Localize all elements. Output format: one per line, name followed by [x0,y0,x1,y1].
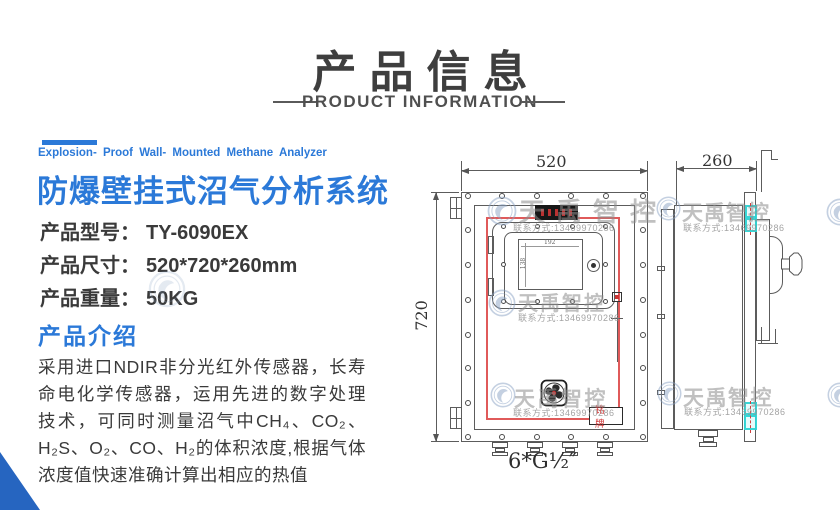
watermark-contact: 联系方式:13469970286 [683,221,785,234]
spec-value-model: TY-6090EX [146,222,248,244]
dim-label-width: 520 [536,152,567,171]
bolt [501,262,506,267]
mount-hole [657,266,665,271]
mount-hook [761,150,762,192]
intro-heading: 产品介绍 [38,317,138,351]
bolt [640,297,646,303]
gland-thread-spec: 6*G½″ [508,449,577,473]
cable-gland [492,452,508,456]
cable-gland [597,452,613,456]
header-line-right [521,101,565,103]
bolt [465,297,471,303]
watermark-logo-icon [656,196,681,221]
product-title: 防爆壁挂式沼气分析系统 [37,166,389,211]
screen-dim-line [521,246,579,247]
bolt [465,365,471,371]
arrow-icon [749,166,757,172]
sensor-dot [615,295,619,299]
bolt [568,434,574,440]
dim-line-720 [436,192,437,442]
bolt [640,365,646,371]
arrow-icon [433,434,439,442]
bolt [465,262,471,268]
bolt [465,400,471,406]
door-face [756,219,770,341]
bolt [640,332,646,338]
spec-label-weight: 产品重量： [40,288,140,310]
page-title: 产品信息 [0,36,840,100]
arrow-icon [676,166,684,172]
bolt [640,262,646,268]
bolt [534,434,540,440]
bolt [465,332,471,338]
hinge-line [456,407,457,429]
page-subtitle: PRODUCT INFORMATION [0,92,840,112]
bolt [640,434,646,440]
intro-line: 技术，可同时测量沼气中CH₄、CO₂、 [38,408,366,435]
watermark-logo-icon [148,270,186,308]
arrow-icon [461,168,469,174]
watermark-contact: 联系方式:13469970286 [513,221,615,234]
intro-line: H₂S、O₂、CO、H₂的体积浓度,根据气体 [38,435,366,462]
bolt [640,400,646,406]
screen-dim-height: 138 [520,258,527,269]
cable-gland [699,442,717,447]
screen-dim-width: 192 [544,239,555,246]
dim-extension-line [461,161,462,191]
mount-hole [657,314,665,319]
arrow-icon [640,168,648,174]
bolt [499,434,505,440]
bolt [465,434,471,440]
bolt [465,227,471,233]
product-tagline-en: Explosion- Proof Wall- Mounted Methane A… [38,147,327,159]
mount-hook [771,159,778,160]
intro-line: 命电化学传感器，运用先进的数字处理 [38,381,366,408]
page: 产品信息 PRODUCT INFORMATION Explosion- Proo… [0,0,840,510]
intro-line: 浓度值快速准确计算出相应的热值 [38,462,366,489]
corner-decoration [0,452,40,510]
watermark-contact: 联系方式:13469970286 [684,405,786,418]
door-knob [781,248,803,280]
spec-row-model: 产品型号：TY-6090EX [40,216,248,245]
panel-hinge [488,236,494,254]
watermark-contact: 联系方式:13469970286 [513,406,615,419]
hinge-line [456,197,457,219]
dim-label-height: 720 [412,300,431,331]
dim-label-depth: 260 [702,151,733,170]
bolt [465,193,471,199]
face-step [761,327,762,344]
accent-bar [42,140,97,145]
watermark-logo-icon [827,382,840,408]
bolt [603,434,609,440]
watermark-logo-icon [488,289,516,317]
spec-label-size: 产品尺寸： [40,255,140,277]
panel-knob-center [591,263,596,268]
bolt [603,262,608,267]
spec-label-model: 产品型号： [40,222,140,244]
intro-line: 采用进口NDIR非分光红外传感器，长寿 [38,354,366,381]
watermark-logo-icon [657,381,682,406]
arrow-icon [433,192,439,200]
face-step [775,329,776,344]
watermark-contact: 联系方式:13469970286 [518,311,620,324]
watermark-logo-icon [826,198,840,226]
cable-gland [698,430,718,437]
dim-extension-line [647,161,648,191]
watermark-logo-icon [490,382,516,408]
